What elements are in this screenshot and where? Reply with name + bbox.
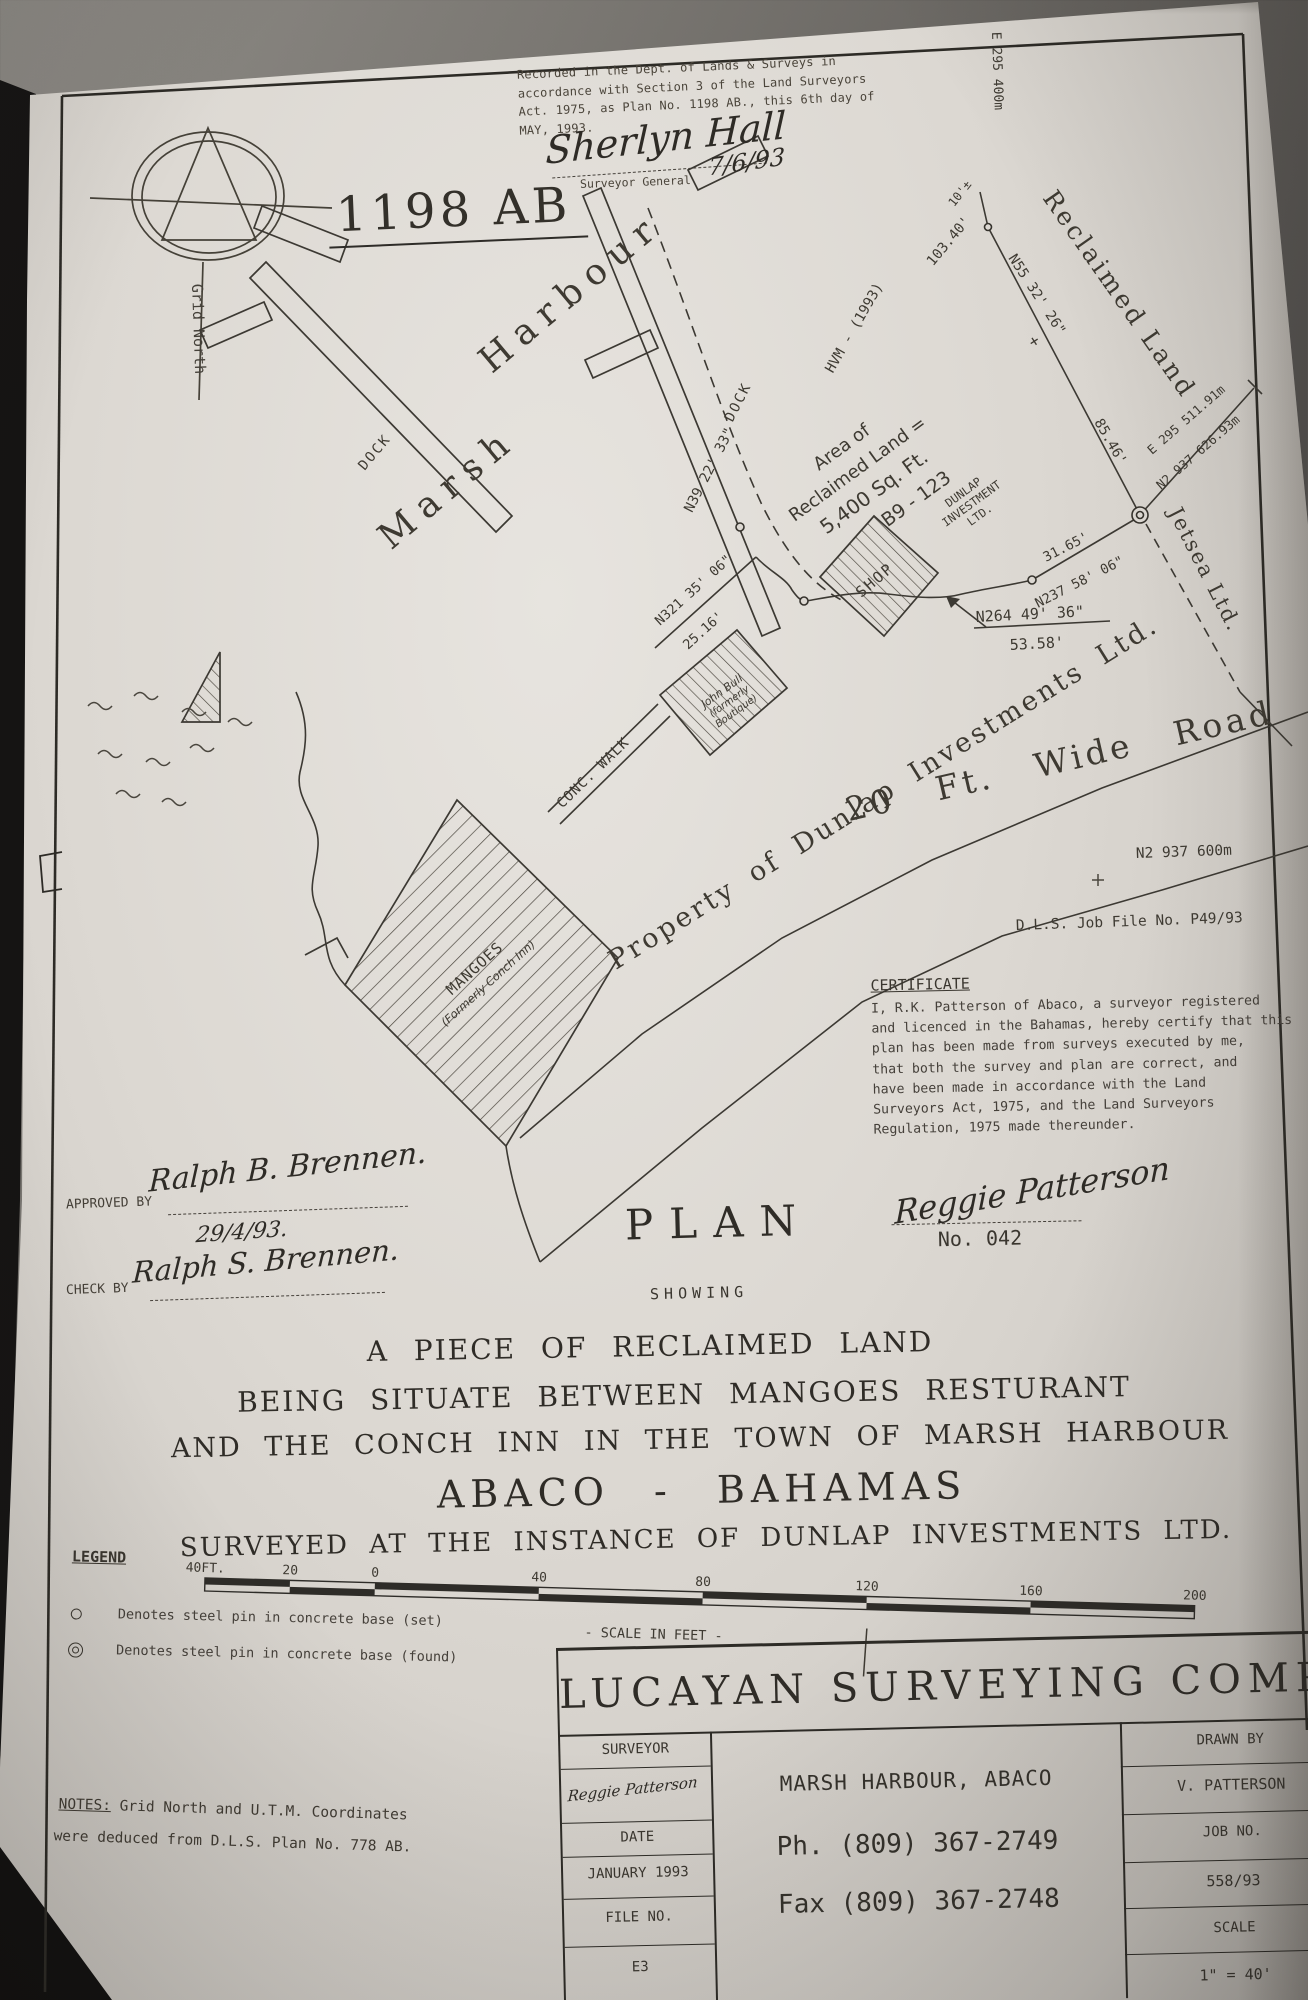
grid-north-label: Grid North <box>188 284 209 375</box>
scale-tick-0: 0 <box>371 1566 379 1581</box>
compass-triangle <box>162 128 256 240</box>
hwm-label: HVM - (1993) <box>822 280 886 376</box>
scale-label: SCALE <box>1124 1917 1308 1938</box>
hatched-triangle <box>182 652 220 722</box>
water-symbol <box>146 759 170 766</box>
scale-tick-120: 120 <box>855 1579 879 1595</box>
pin-found-inner <box>1137 512 1144 519</box>
plus-mark: + <box>1024 332 1045 350</box>
steel-pin-found-inner <box>72 1646 79 1653</box>
n264-arrowhead <box>946 596 960 608</box>
company-phone: Ph. (809) 367-2749 <box>712 1824 1123 1863</box>
company-fax: Fax (809) 367-2748 <box>714 1882 1125 1921</box>
pin-set-3 <box>800 597 808 605</box>
certificate-block: CERTIFICATE I, R.K. Patterson of Abaco, … <box>870 967 1308 1141</box>
table-line-2 <box>562 1820 712 1824</box>
date-value: JANUARY 1993 <box>563 1863 713 1882</box>
check-by-label: CHECK BY <box>66 1281 129 1298</box>
coastline-lower <box>506 1146 540 1262</box>
grid-easting-top-label: E 295 400m <box>988 32 1006 111</box>
table-line-4 <box>564 1895 714 1899</box>
drawn-by-label: DRAWN BY <box>1120 1729 1308 1750</box>
drawn-by-value: V. PATTERSON <box>1121 1773 1308 1796</box>
high-water-mark-dashed <box>648 208 845 602</box>
scale-caption: - SCALE IN FEET - <box>584 1625 723 1645</box>
job-no-value: 558/93 <box>1123 1869 1308 1892</box>
scale-tick-160: 160 <box>1019 1584 1043 1600</box>
frame-right <box>1243 34 1307 1730</box>
reclaimed-land-label: Reclaimed Land <box>1037 185 1202 404</box>
water-symbol <box>228 719 252 726</box>
frame-left-tab <box>40 852 62 892</box>
scale-tick-40: 40 <box>531 1570 547 1585</box>
notes-label: NOTES: <box>58 1796 111 1814</box>
scale-tick-200: 200 <box>1183 1588 1207 1604</box>
table-line-r1 <box>1121 1761 1308 1767</box>
bearing-n55-label: N55 32' 26" <box>1005 251 1069 337</box>
legend-title: LEGEND <box>72 1547 127 1566</box>
water-symbol <box>98 751 122 758</box>
length-103-label: 103.40' <box>924 214 974 269</box>
water-symbol <box>190 745 214 752</box>
compass-inner-circle <box>142 141 276 253</box>
certifier-number: No. 042 <box>938 1226 1023 1252</box>
plan-number: 1198 AB <box>327 176 589 248</box>
legend-block: LEGEND Denotes steel pin in concrete bas… <box>72 1547 127 1566</box>
conc-walk-label: CONC. WALK <box>554 735 633 812</box>
length-10-label: 10'± <box>945 178 974 209</box>
steel-pin-found-icon <box>68 1642 83 1657</box>
hwm-stub <box>980 192 988 227</box>
job-no-label: JOB NO. <box>1122 1821 1308 1842</box>
company-address: MARSH HARBOUR, ABACO <box>711 1764 1121 1797</box>
date-label: DATE <box>562 1828 712 1847</box>
dock-b-label: DOCK <box>722 380 755 424</box>
pin-set-2 <box>736 523 744 531</box>
grid-cross-mark <box>1092 874 1104 886</box>
scale-value: 1" = 40' <box>1125 1963 1308 1986</box>
water-symbol <box>134 693 158 700</box>
table-line-1 <box>561 1766 711 1770</box>
table-line-r5 <box>1125 1949 1308 1955</box>
table-line-3 <box>563 1853 713 1857</box>
n321-squiggle <box>756 557 804 601</box>
steel-pin-set-icon <box>71 1608 82 1619</box>
file-label: FILE NO. <box>564 1907 714 1926</box>
grid-northing-right-label: N2 937 600m <box>1136 843 1233 862</box>
table-line-r4 <box>1124 1903 1308 1909</box>
approved-by-label: APPROVED BY <box>66 1195 153 1213</box>
showing-word: SHOWING <box>650 1283 749 1304</box>
file-value: E3 <box>565 1957 715 1976</box>
conc-walk-edge-2 <box>560 716 670 824</box>
water-symbol <box>162 799 186 806</box>
table-line-5 <box>565 1943 715 1947</box>
title-block-table: LUCAYAN SURVEYING COMPANY SURVEYOR Reggi… <box>556 1630 1308 2000</box>
grid-north-compass <box>90 128 332 400</box>
jetsea-label: Jetsea Ltd. <box>1163 502 1247 636</box>
water-symbol <box>116 791 140 798</box>
coordinate-n-label: N2 937 626.93m <box>1153 412 1242 492</box>
plan-word: PLAN <box>624 1196 812 1250</box>
pin-set-1 <box>985 224 992 231</box>
photo-of-survey-plan: { "stamp": { "line1": "Recorded in the D… <box>0 0 1308 2000</box>
pin-set-4 <box>1028 576 1036 584</box>
marsh-label: Marsh <box>370 419 524 558</box>
scale-tick-80: 80 <box>695 1575 711 1590</box>
water-symbol <box>88 703 112 710</box>
length-53-label: 53.58' <box>1009 633 1064 654</box>
dock-a-label: DOCK <box>355 431 394 473</box>
coastline-upper <box>296 692 345 985</box>
compass-horizontal-axis <box>90 198 332 208</box>
frame-left <box>45 96 62 1992</box>
dock-a-arm-west <box>200 302 272 348</box>
surveyor-label: SURVEYOR <box>560 1740 710 1759</box>
scale-tick-20: 20 <box>282 1563 298 1578</box>
table-vline-right <box>1120 1722 1128 1998</box>
job-file-label: D.L.S. Job File No. P49/93 <box>1016 910 1243 934</box>
surveyor-signature: Reggie Patterson <box>567 1771 717 1806</box>
table-line-r3 <box>1123 1857 1308 1863</box>
main-title-line-4: ABACO - BAHAMAS <box>436 1463 967 1516</box>
table-line-r2 <box>1122 1809 1308 1815</box>
